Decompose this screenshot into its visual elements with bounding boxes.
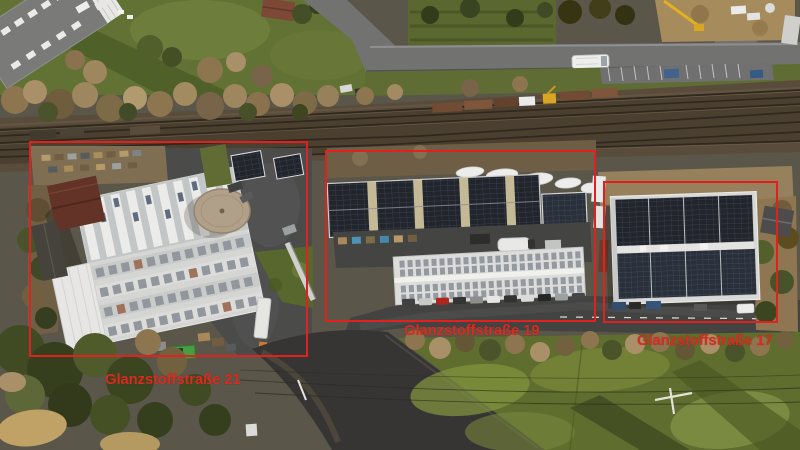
light-wash [0, 0, 800, 450]
aerial-scene [0, 0, 800, 450]
aerial-photo-stage: Glanzstoffstraße 21 Glanzstoffstraße 19 … [0, 0, 800, 450]
